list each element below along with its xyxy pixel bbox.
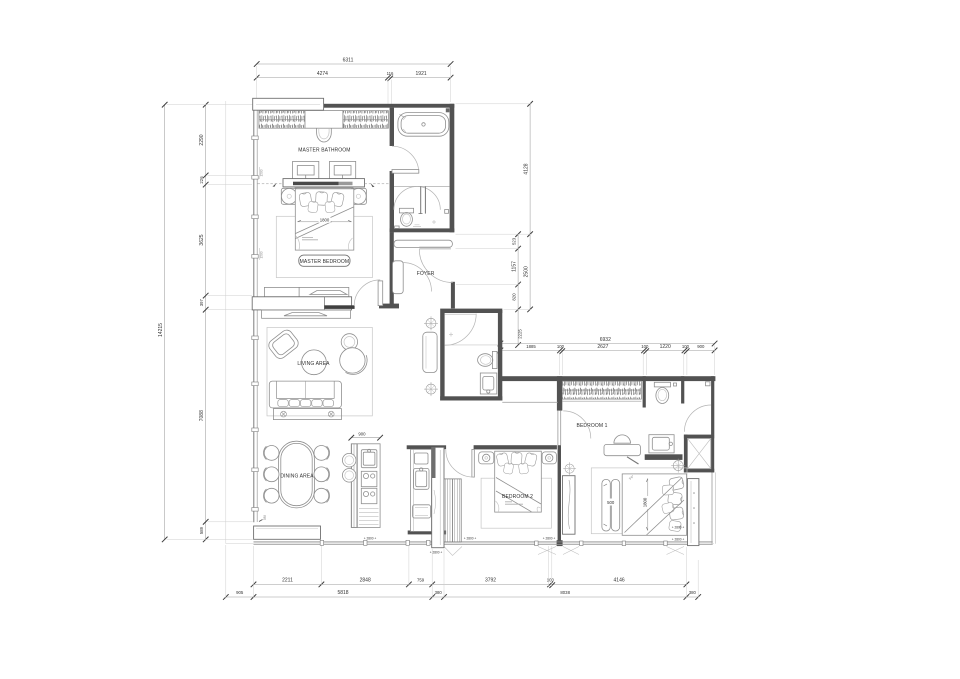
svg-text:100: 100 xyxy=(641,344,649,349)
svg-text:MASTER BEDROOM: MASTER BEDROOM xyxy=(300,259,349,265)
svg-text:820: 820 xyxy=(511,293,516,301)
svg-text:4146: 4146 xyxy=(614,577,625,583)
svg-text:100: 100 xyxy=(547,577,555,582)
svg-text:4128: 4128 xyxy=(523,163,529,174)
svg-text:905: 905 xyxy=(236,590,244,595)
svg-text:+ 2800 +: + 2800 + xyxy=(364,537,377,541)
svg-text:380: 380 xyxy=(435,590,443,595)
svg-text:BEDROOM 1: BEDROOM 1 xyxy=(577,423,608,429)
svg-text:226: 226 xyxy=(199,176,204,184)
svg-text:100: 100 xyxy=(682,344,690,349)
svg-text:DINING AREA: DINING AREA xyxy=(280,473,314,479)
svg-text:6932: 6932 xyxy=(600,337,611,343)
svg-text:BEDROOM 2: BEDROOM 2 xyxy=(502,494,533,500)
svg-text:1157: 1157 xyxy=(511,261,517,272)
svg-text:+ 2800 +: + 2800 + xyxy=(543,537,556,541)
svg-text:14215: 14215 xyxy=(158,323,164,337)
svg-text:100: 100 xyxy=(557,344,565,349)
svg-text:8038: 8038 xyxy=(560,590,570,595)
svg-text:1921: 1921 xyxy=(416,71,427,77)
svg-text:6311: 6311 xyxy=(343,58,354,64)
svg-text:1220: 1220 xyxy=(660,344,671,350)
svg-text:2848: 2848 xyxy=(360,577,371,583)
svg-text:759: 759 xyxy=(417,577,425,582)
svg-text:+ 2800 +: + 2800 + xyxy=(672,526,685,530)
svg-text:397: 397 xyxy=(199,299,204,307)
svg-text:2290: 2290 xyxy=(199,134,205,145)
svg-text:380: 380 xyxy=(689,590,697,595)
svg-text:2211: 2211 xyxy=(282,577,293,583)
svg-text:1500: 1500 xyxy=(260,251,264,258)
svg-text:7088: 7088 xyxy=(199,410,205,421)
svg-text:900: 900 xyxy=(697,344,705,349)
svg-text:+ 2800 +: + 2800 + xyxy=(464,537,477,541)
svg-text:523: 523 xyxy=(511,237,516,245)
svg-text:589: 589 xyxy=(263,515,267,521)
svg-text:900: 900 xyxy=(358,431,366,436)
svg-text:+ 2800 +: + 2800 + xyxy=(672,538,685,542)
svg-text:1500: 1500 xyxy=(260,169,264,176)
svg-text:2225: 2225 xyxy=(518,329,523,339)
svg-text:2500: 2500 xyxy=(523,266,529,277)
svg-text:5818: 5818 xyxy=(337,590,348,596)
svg-text:500: 500 xyxy=(607,500,615,505)
svg-text:MASTER BATHROOM: MASTER BATHROOM xyxy=(298,147,350,153)
svg-text:3625: 3625 xyxy=(199,234,205,245)
svg-text:116: 116 xyxy=(387,71,394,76)
svg-text:1800: 1800 xyxy=(320,218,330,223)
svg-text:1800: 1800 xyxy=(642,497,647,507)
svg-text:LIVING AREA: LIVING AREA xyxy=(297,361,330,367)
svg-text:+ 2800 +: + 2800 + xyxy=(430,551,443,555)
svg-text:3792: 3792 xyxy=(485,577,496,583)
svg-text:2627: 2627 xyxy=(597,344,608,350)
svg-text:1885: 1885 xyxy=(526,344,536,349)
svg-text:4274: 4274 xyxy=(317,71,328,77)
svg-text:589: 589 xyxy=(199,526,204,534)
